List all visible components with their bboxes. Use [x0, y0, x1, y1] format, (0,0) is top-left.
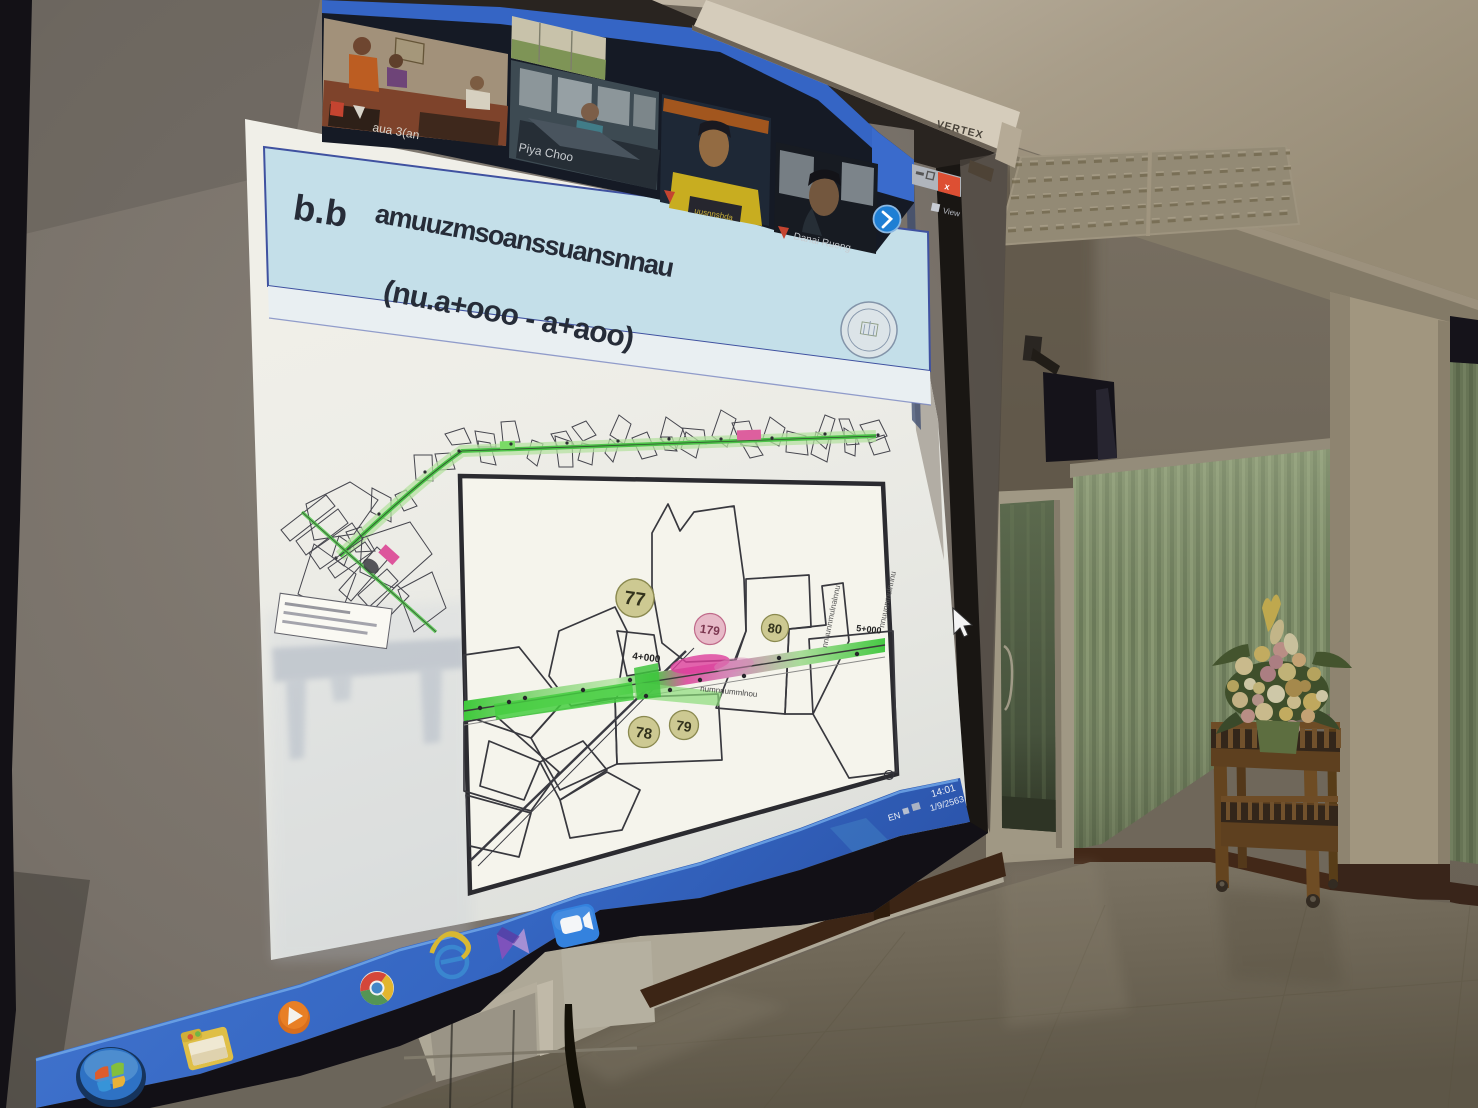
- svg-text:179: 179: [699, 622, 721, 639]
- svg-text:80: 80: [767, 620, 783, 637]
- svg-text:77: 77: [623, 588, 647, 612]
- svg-text:78: 78: [634, 724, 653, 743]
- svg-text:79: 79: [675, 717, 693, 735]
- svg-text:b.b: b.b: [291, 186, 350, 235]
